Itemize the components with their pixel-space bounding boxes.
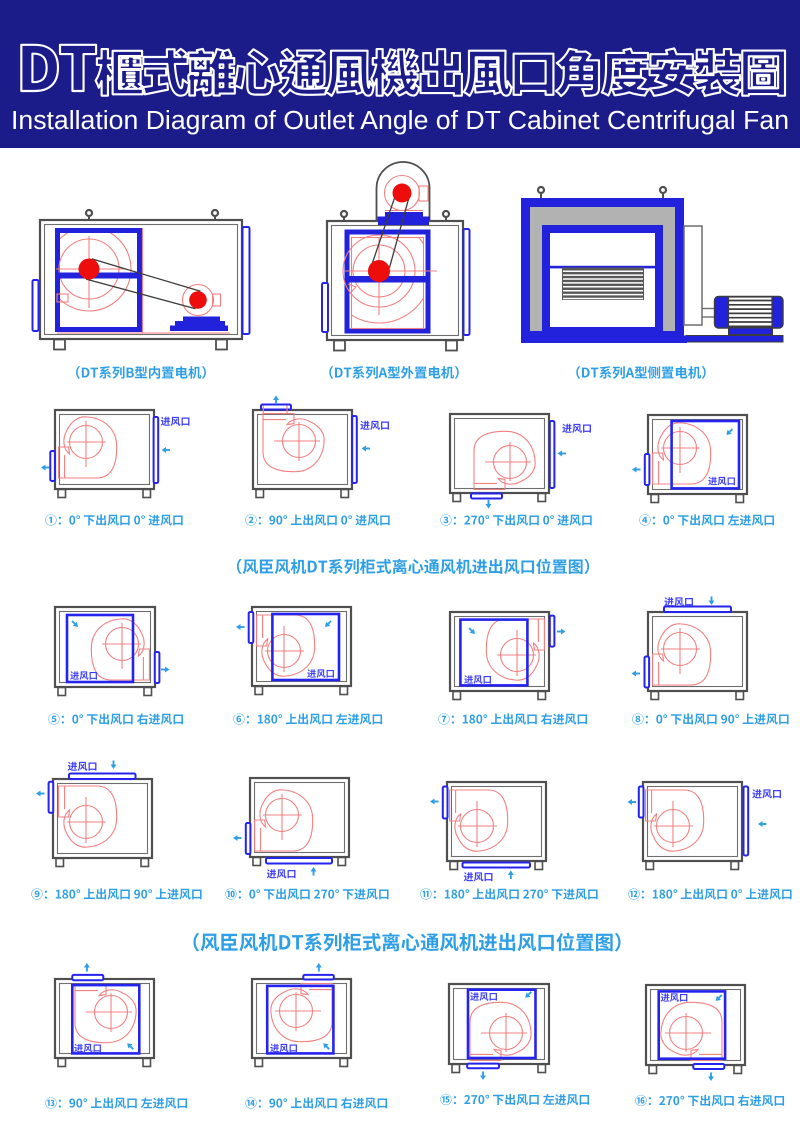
svg-text:Installation Diagram of Outlet: Installation Diagram of Outlet Angle of …: [11, 107, 789, 135]
